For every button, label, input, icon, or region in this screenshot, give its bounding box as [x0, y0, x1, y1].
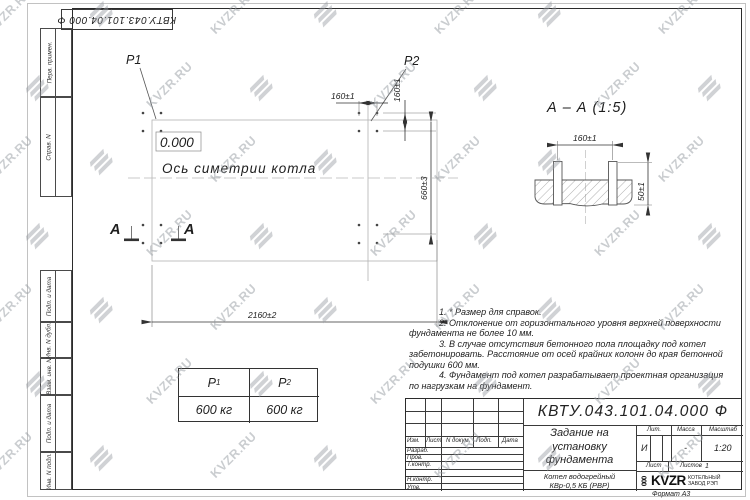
logo-name: KVZR — [651, 473, 686, 488]
section-view-title: А – А (1:5) — [546, 100, 627, 116]
section-marker-left: А — [109, 222, 139, 241]
product-name-line: КВр-0,5 КБ (РВР) — [544, 481, 615, 490]
dim-160h-value: 160±1 — [331, 91, 355, 101]
scale-label: Масштаб — [709, 427, 737, 433]
anchor-bolt-right — [609, 162, 618, 206]
dim-2160: 2160±2 — [152, 310, 437, 322]
note-line: фундамента не более 10 мм. — [409, 328, 719, 339]
coil-icon: 000 — [638, 472, 650, 490]
logo-subtitle-line: ЗАВОД РЭП — [688, 481, 721, 487]
section-dim-50: 50±1 — [636, 163, 648, 205]
format-label: Формат А3 — [652, 491, 690, 498]
note-line: 4. Фундамент под котел разрабатывает про… — [409, 370, 719, 381]
doc-title-line: фундамента — [546, 454, 614, 468]
p-sub: 1 — [216, 378, 220, 387]
sheets-label: Листов — [680, 463, 702, 469]
extension-lines — [152, 101, 437, 327]
section-a-a-view: А – А (1:5) 160±1 50±1 — [535, 100, 652, 226]
title-block: Изм. Лист N докум. Подп. Дата Разраб. Пр… — [405, 398, 742, 490]
section-dim-160-value: 160±1 — [573, 133, 597, 143]
anchor-bolt-left — [554, 162, 563, 206]
mass-value: - — [684, 443, 687, 453]
col-list: Лист — [426, 438, 441, 444]
note-line: по нагрузкам на фундамент. — [409, 381, 719, 392]
row-nkontr: Н.контр. — [407, 477, 432, 483]
sheets-value: 1 — [705, 463, 709, 470]
p-sub: 2 — [286, 378, 290, 387]
lit-value: И — [641, 443, 647, 453]
section-dim-50-value: 50±1 — [636, 182, 646, 201]
section-dim-160: 160±1 — [558, 133, 613, 145]
col-podp: Подп. — [476, 438, 492, 444]
section-letter: А — [109, 222, 120, 238]
load-value-p2: 600 кг — [249, 396, 319, 423]
technical-notes: 1. * Размер для справок. 2. Отклонение о… — [409, 307, 719, 391]
note-line: 1. * Размер для справок. — [409, 307, 719, 318]
dim-160v-value: 160±1 — [392, 78, 402, 102]
dim-660-value: 660±3 — [419, 176, 429, 200]
scale-value: 1:20 — [714, 443, 732, 453]
concrete-foundation-block — [535, 180, 632, 206]
doc-title-line: установку — [546, 441, 614, 455]
p-symbol: P — [208, 376, 216, 390]
load-value-p1: 600 кг — [179, 396, 249, 423]
p2-label: P2 — [404, 54, 419, 68]
dim-2160-value: 2160±2 — [247, 310, 277, 320]
logo-subtitle: КОТЕЛЬНЫЙ ЗАВОД РЭП — [688, 475, 721, 487]
mass-label: Масса — [677, 427, 695, 433]
load-table: P1 P2 600 кг 600 кг — [178, 368, 318, 422]
level-mark: 0.000 — [160, 135, 194, 150]
load-table-header-p2: P2 — [249, 369, 319, 396]
drawing-sheet: Перв. примен. Справ. N Подп. и дата Инв.… — [0, 0, 750, 500]
col-doc: N докум. — [446, 438, 470, 444]
dim-660: 660±3 — [419, 122, 431, 234]
dim-160-vertical: 160±1 — [392, 78, 405, 141]
boiler-symmetry-axis-label: Ось симетрии котла — [162, 161, 316, 176]
company-logo: 000 KVZR КОТЕЛЬНЫЙ ЗАВОД РЭП — [636, 471, 743, 491]
p1-leader-line — [140, 68, 156, 119]
doc-title: Задание на установку фундамента — [523, 425, 636, 470]
load-table-header-p1: P1 — [179, 369, 249, 396]
p1-label: P1 — [126, 53, 141, 67]
lit-label: Лит. — [647, 427, 661, 433]
section-marker-right: А — [171, 222, 194, 241]
foundation-outline — [152, 120, 437, 261]
row-razrab: Разраб. — [407, 448, 429, 454]
section-letter: А — [183, 222, 194, 238]
row-utv: Утв. — [407, 485, 421, 491]
row-tkontr: Т.контр. — [407, 462, 431, 468]
product-name-line: Котел водогрейный — [544, 472, 615, 481]
row-prov: Пров. — [407, 455, 423, 461]
note-line: забетонировать. Расстояние от осей крайн… — [409, 349, 719, 360]
note-line: 2. Отклонение от горизонтального уровня … — [409, 318, 719, 329]
doc-title-line: Задание на — [546, 427, 614, 441]
sheet-label: Лист — [646, 463, 661, 469]
product-name: Котел водогрейный КВр-0,5 КБ (РВР) — [523, 470, 636, 491]
note-line: 3. В случае отсутствия бетонного пола пл… — [409, 339, 719, 350]
note-line: подушки 600 мм. — [409, 360, 719, 371]
col-izm: Изм. — [407, 438, 420, 444]
plan-view: P1 P2 160±1 — [109, 53, 458, 327]
col-data: Дата — [502, 438, 518, 444]
doc-number: КВТУ.043.101.04.000 Ф — [523, 399, 743, 425]
dim-160-horizontal: 160±1 — [331, 91, 388, 103]
